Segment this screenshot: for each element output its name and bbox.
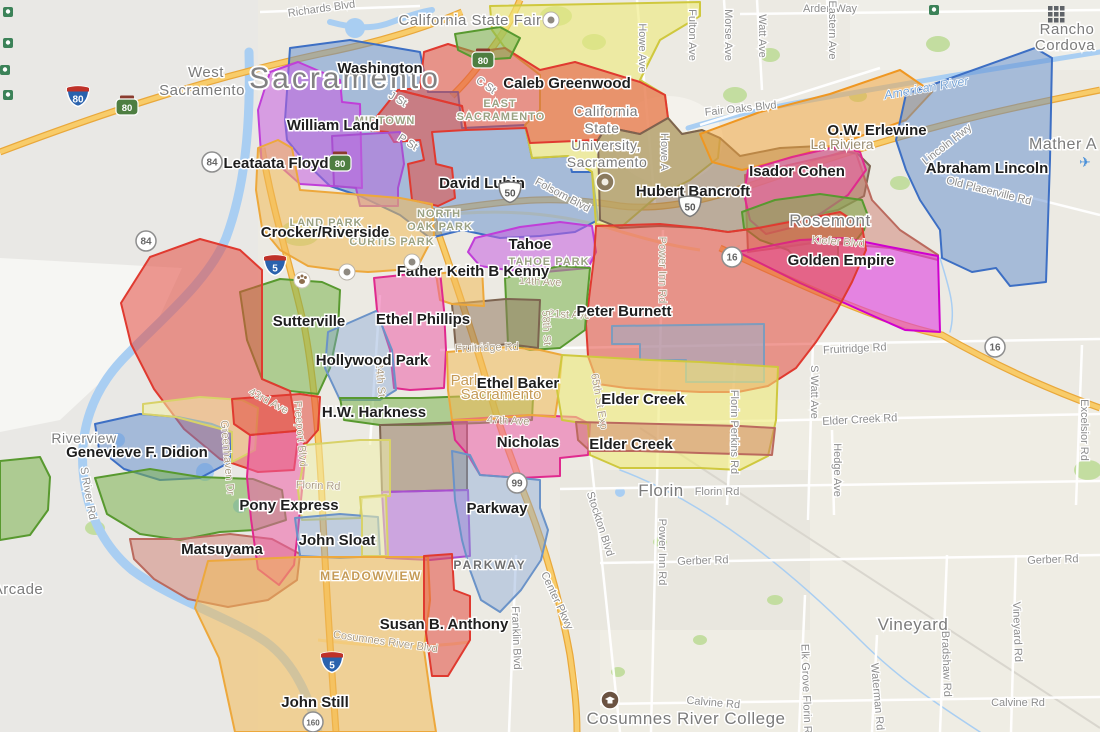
neighborhood-label: EAST [483,98,516,110]
grid-dot [1060,12,1065,17]
route-shield-16: 16 [722,247,742,267]
park-icon [3,7,13,17]
road-label: Howe A [658,133,670,172]
school-zone-label: Washington [337,60,422,77]
city-label: Arcade [0,581,43,598]
shield-text: 160 [306,719,320,728]
icon-dot [409,259,416,266]
school-zone-label: Ethel Phillips [376,311,470,328]
icon-dot [6,92,10,96]
road-label: Fruitridge Rd [455,341,519,355]
school-zone-label: Susan B. Anthony [380,616,509,633]
grid-dot [1060,6,1065,11]
route-shield-84: 84 [202,152,222,172]
road-label: Franklin Blvd [509,606,523,670]
school-zone-label: Sutterville [273,313,346,330]
road-label: Fulton Ave [686,9,698,61]
road-label: Hedge Ave [831,443,843,497]
poi-icon [404,254,420,270]
city-label: Rosemont [789,211,870,230]
road-label: 58th St [539,310,553,345]
city-label: Sacramento [567,154,647,170]
shield-text: 50 [504,189,516,200]
route-shield-84: 84 [136,231,156,251]
icon-dot [932,7,936,11]
park-icon [929,5,939,15]
neighborhood-label: OAK PARK [407,221,473,233]
land-patch [560,470,810,630]
school-zone-label: Parkway [467,500,529,517]
grid-dot [1054,6,1059,11]
city-label: Florin [638,481,684,500]
paw-toe [297,276,300,279]
park-area [890,176,910,190]
shield-text: 5 [272,264,278,275]
grid-dot [1048,6,1053,11]
city-label: West [188,64,224,81]
grid-dot [1060,18,1065,23]
road-label: 47th Ave [487,414,530,428]
city-label: Mather A [1029,136,1097,153]
school-zone-label: Abraham Lincoln [926,160,1049,177]
park-icon [3,38,13,48]
city-label: California State Fair [398,12,541,29]
school-zone-label: John Still [281,694,349,711]
road-label: S Watt Ave [808,365,820,419]
city-label: Cosumnes River College [586,709,785,728]
school-zone-label: Nicholas [497,434,560,451]
icon-dot [3,67,7,71]
road-label: Bradshaw Rd [939,631,953,697]
road-label: Florin Rd [296,479,341,493]
paw-toe [304,276,307,279]
neighborhood-label: PARKWAY [453,558,526,572]
neighborhood-label: MEADOWVIEW [320,569,422,583]
lake [345,18,365,38]
shield-text: 80 [335,159,346,170]
school-zone-label: Isador Cohen [749,163,845,180]
shield-text: 80 [478,56,489,67]
grid-dot [1048,18,1053,23]
school-zone-label: O.W. Erlewine [827,122,926,139]
school-zone-label: Crocker/Riverside [261,224,389,241]
city-college-icon [339,264,355,280]
grid-dot [1054,18,1059,23]
road-label: Morse Ave [722,9,734,61]
school-zone-label: Leataata Floyd [223,155,328,172]
icon-dot [602,179,609,186]
park-icon [0,65,10,75]
road-label: Florin Rd [695,486,740,498]
college-icon [601,691,619,709]
state-fair-icon [543,12,559,28]
zoo-paw-icon [294,272,310,288]
park-area [767,595,783,605]
route-shield-160: 160 [303,712,323,732]
school-zone-label: William Land [287,117,379,134]
road-label: Eastern Ave [826,0,838,59]
csu-campus-icon [596,173,614,191]
school-zone-label: John Sloat [299,532,376,549]
road-label: Calvine Rd [991,697,1045,709]
route-shield-99: 99 [507,473,527,493]
park-icon [3,90,13,100]
school-zone-label: Elder Creek [589,436,673,453]
park-area [723,87,747,103]
school-zone-label: Genevieve F. Didion [66,444,208,461]
road-label: Power Inn Rd [656,237,668,304]
city-label: State [584,120,619,136]
icon-dot [6,9,10,13]
school-zone-label: Peter Burnett [576,303,671,320]
icon-dot [6,40,10,44]
road-label: Florin Perkins Rd [728,390,740,474]
airport-icon: ✈ [1079,154,1091,170]
park-area [693,635,707,645]
shield-text: 50 [684,203,696,214]
paw-pad [299,279,305,284]
road-label: Howe Ave [636,23,648,72]
road-label: Gerber Rd [1027,553,1079,567]
road-label: Watt Ave [756,14,768,57]
shield-text: 99 [511,479,523,490]
city-label: California [574,103,638,119]
plane-glyph: ✈ [1079,154,1091,170]
neighborhood-label: SACRAMENTO [457,111,546,123]
apps-grid-icon[interactable] [1048,6,1065,23]
school-zone-label: Ethel Baker [477,375,560,392]
shield-text: 16 [989,343,1001,354]
school-zone-label: Caleb Greenwood [503,75,631,92]
neighborhood-label: NORTH [417,208,461,220]
school-zone-label: Pony Express [239,497,338,514]
road-label: Power Inn Rd [656,519,668,586]
shield-text: 84 [206,158,218,169]
road-label: Vineyard Rd [1010,602,1024,663]
map-canvas[interactable]: MIDTOWNEASTSACRAMENTOLAND PARKCURTIS PAR… [0,0,1100,732]
icon-dot [548,17,555,24]
icon-dot [344,269,351,276]
route-shield-16: 16 [985,337,1005,357]
road-label: Gerber Rd [677,554,729,568]
shield-text: 5 [329,661,335,672]
map-viewport[interactable]: MIDTOWNEASTSACRAMENTOLAND PARKCURTIS PAR… [0,0,1100,732]
city-label: Cordova [1035,37,1095,54]
city-label: University, [571,137,641,153]
shield-text: 80 [122,103,133,114]
park-area [926,36,950,52]
shield-text: 16 [726,253,738,264]
grid-dot [1054,12,1059,17]
paw-toe [301,275,304,278]
shield-text: 84 [140,237,152,248]
school-zone-label: H.W. Harkness [322,404,426,421]
city-label: Vineyard [878,615,949,634]
city-label: Rancho [1040,21,1095,38]
school-zone-label: Hollywood Park [316,352,429,369]
school-zone-label: Tahoe [508,236,551,253]
grad-cap-base [608,701,613,704]
city-label: Sacramento [159,82,245,99]
school-zone-label: Matsuyama [181,541,263,558]
shield-text: 80 [72,95,84,106]
school-zone-label: Elder Creek [601,391,685,408]
grid-dot [1048,12,1053,17]
road-label: Excelsior Rd [1078,399,1090,461]
school-zone-label: Golden Empire [788,252,895,269]
